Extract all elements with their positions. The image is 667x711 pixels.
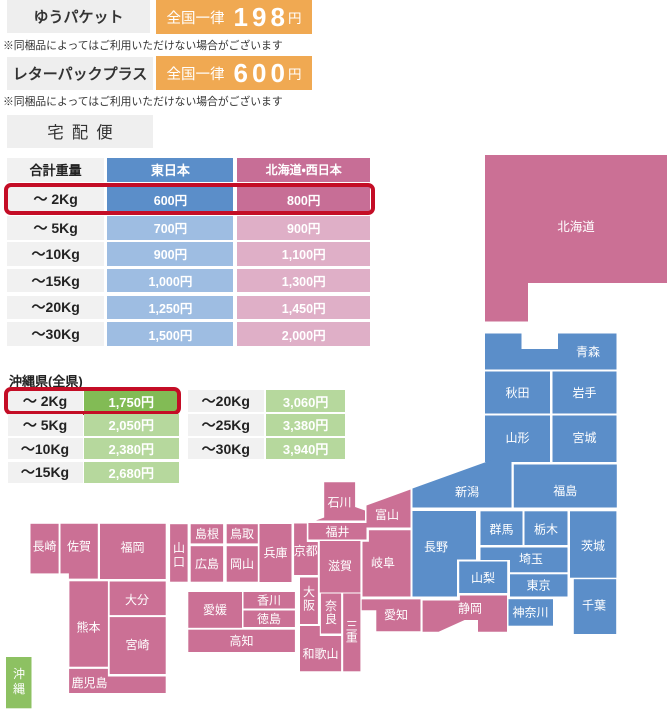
svg-text:高知: 高知 <box>229 634 253 648</box>
svg-text:愛媛: 愛媛 <box>203 603 227 617</box>
svg-text:東京: 東京 <box>526 579 550 593</box>
svg-text:奈: 奈 <box>325 599 337 613</box>
svg-text:口: 口 <box>173 555 185 569</box>
svg-text:鹿児島: 鹿児島 <box>71 675 107 690</box>
svg-text:縄: 縄 <box>13 682 25 696</box>
svg-text:京都: 京都 <box>294 544 318 558</box>
svg-text:埼玉: 埼玉 <box>519 552 543 566</box>
svg-text:島根: 島根 <box>195 526 219 541</box>
svg-text:岐阜: 岐阜 <box>371 556 395 570</box>
svg-text:岩手: 岩手 <box>572 385 596 400</box>
svg-text:熊本: 熊本 <box>76 621 100 635</box>
svg-text:群馬: 群馬 <box>489 523 513 537</box>
svg-text:香川: 香川 <box>257 594 281 608</box>
svg-text:広島: 広島 <box>195 556 219 571</box>
svg-text:石川: 石川 <box>327 496 351 510</box>
svg-text:阪: 阪 <box>303 599 315 613</box>
svg-text:山形: 山形 <box>505 431 529 445</box>
svg-text:兵庫: 兵庫 <box>263 546 287 560</box>
svg-text:富山: 富山 <box>375 508 399 522</box>
svg-text:長野: 長野 <box>424 540 448 554</box>
svg-text:北海道: 北海道 <box>557 219 595 234</box>
svg-text:神奈川: 神奈川 <box>512 605 548 620</box>
svg-text:新潟: 新潟 <box>455 485 479 499</box>
svg-text:栃木: 栃木 <box>534 523 558 537</box>
svg-text:良: 良 <box>325 611 337 626</box>
svg-text:福島: 福島 <box>553 483 577 498</box>
svg-text:山: 山 <box>173 541 185 555</box>
svg-text:重: 重 <box>346 631 358 645</box>
svg-text:宮城: 宮城 <box>572 430 596 445</box>
svg-text:佐賀: 佐賀 <box>67 540 91 554</box>
svg-text:福井: 福井 <box>325 524 349 539</box>
svg-text:宮崎: 宮崎 <box>125 637 149 652</box>
svg-text:秋田: 秋田 <box>505 386 529 400</box>
svg-text:茨城: 茨城 <box>581 539 605 553</box>
svg-text:山梨: 山梨 <box>471 571 495 585</box>
svg-text:和歌山: 和歌山 <box>302 647 338 661</box>
svg-text:岡山: 岡山 <box>230 557 254 571</box>
svg-text:静岡: 静岡 <box>458 602 482 616</box>
svg-text:愛知: 愛知 <box>384 608 408 622</box>
svg-text:長崎: 長崎 <box>32 540 56 554</box>
svg-text:鳥取: 鳥取 <box>230 526 254 541</box>
svg-text:沖: 沖 <box>13 667 25 681</box>
svg-text:青森: 青森 <box>576 344 600 359</box>
svg-text:徳島: 徳島 <box>257 611 281 626</box>
svg-text:千葉: 千葉 <box>582 599 606 613</box>
svg-text:大分: 大分 <box>125 593 149 607</box>
svg-text:滋賀: 滋賀 <box>328 558 352 573</box>
svg-text:福岡: 福岡 <box>120 540 144 555</box>
svg-text:大: 大 <box>303 585 315 599</box>
